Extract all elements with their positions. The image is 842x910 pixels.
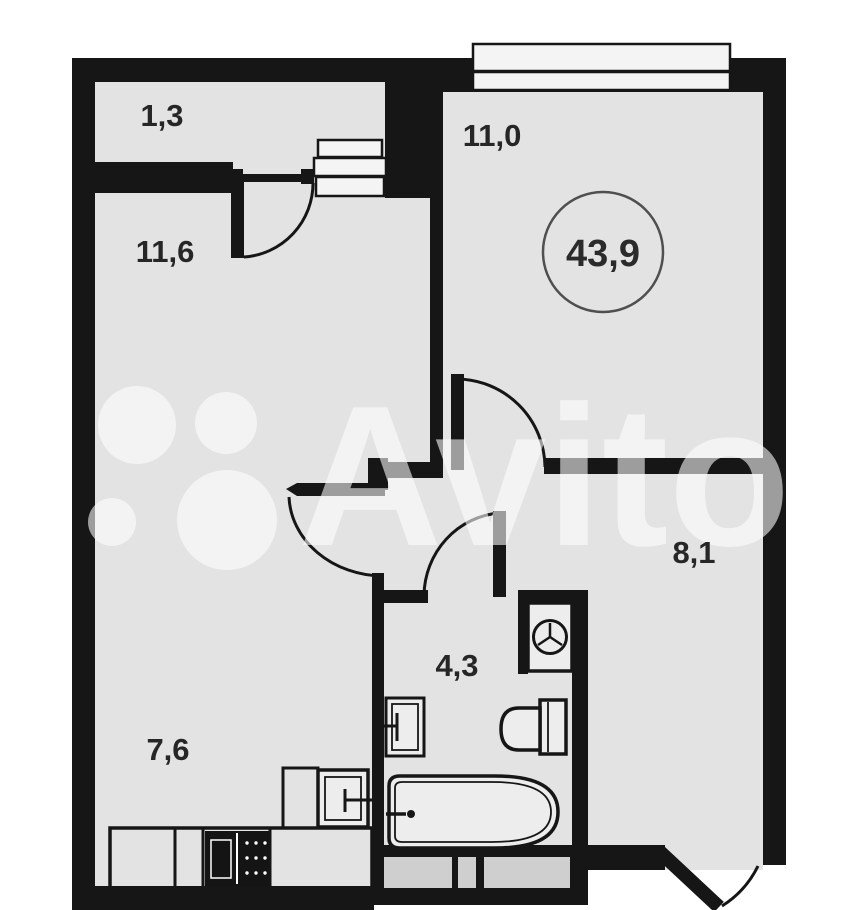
- total-area-value: 43,9: [566, 233, 640, 275]
- balcony-window-mid: [314, 158, 386, 176]
- wall-bottom-right: [583, 845, 665, 870]
- wall-kitchen-bathroom: [372, 573, 384, 848]
- balcony-door-leaf: [231, 182, 244, 258]
- balcony-window-outer: [318, 140, 382, 157]
- floor-plan: Avito 43,9 1,3 11,6 11,0 7,6 4,3 8,1: [0, 0, 842, 910]
- bedroom-window-inner: [473, 72, 730, 90]
- room-label-living-room: 11,6: [136, 234, 195, 269]
- wall-balcony-divider: [385, 58, 443, 198]
- duct-slot-3: [484, 857, 570, 888]
- bedroom-window-outer: [473, 44, 730, 71]
- balcony-door-jamb-right: [301, 169, 314, 184]
- floor-plan-svg: Avito 43,9 1,3 11,6 11,0 7,6 4,3 8,1: [0, 0, 842, 910]
- watermark-logo-circle-2: [195, 392, 257, 454]
- balcony-window-inner: [316, 177, 384, 196]
- wall-bathroom-right: [572, 590, 588, 848]
- bathtub-drain-icon: [407, 810, 415, 818]
- duct-slot-2: [458, 857, 476, 888]
- wall-balcony-bottom: [72, 162, 233, 193]
- toilet-bowl: [501, 708, 540, 750]
- balcony-door-threshold: [233, 174, 310, 182]
- room-label-hallway: 8,1: [672, 535, 715, 570]
- toilet-tank: [540, 700, 566, 754]
- room-label-bedroom: 11,0: [463, 118, 522, 153]
- balcony-door-jamb-left: [230, 169, 243, 184]
- watermark-logo-circle-1: [98, 386, 176, 464]
- wall-bathroom-top-left: [378, 590, 428, 603]
- watermark-logo-circle-4: [88, 498, 136, 546]
- watermark-logo-circle-3: [177, 470, 277, 570]
- duct-slot-1: [384, 857, 452, 888]
- room-label-kitchen: 7,6: [146, 732, 189, 767]
- wall-top-left: [72, 58, 385, 82]
- room-label-bathroom: 4,3: [435, 648, 478, 683]
- watermark-text: Avito: [298, 365, 791, 588]
- room-label-balcony: 1,3: [140, 98, 183, 133]
